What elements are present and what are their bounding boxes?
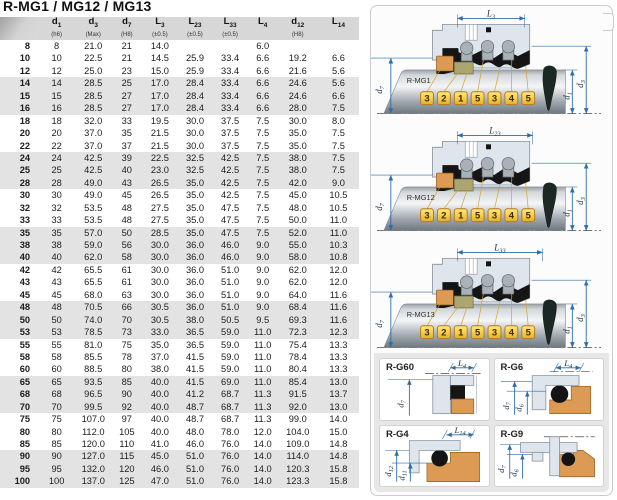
table-cell: 25.9 (177, 52, 212, 64)
table-cell: 40.0 (142, 388, 177, 400)
table-cell: 7.5 (248, 115, 278, 127)
table-cell: 14.0 (248, 438, 278, 450)
table-cell: 68.0 (75, 289, 111, 301)
table-cell: 46.0 (142, 463, 177, 475)
table-cell: 52.0 (278, 227, 318, 239)
table-cell: 48.0 (177, 426, 212, 438)
table-cell: 35.0 (177, 227, 212, 239)
table-cell: 40.0 (142, 376, 177, 388)
table-cell: 53.5 (75, 202, 111, 214)
springs (460, 274, 514, 295)
seal-model-label: R-MG13 (407, 310, 435, 319)
springs (460, 157, 514, 178)
dim-d7-label: d7 (495, 464, 507, 472)
table-cell: 137.0 (75, 475, 111, 487)
row-size-label: 24 (0, 152, 38, 164)
table-cell: 36.0 (177, 251, 212, 263)
row-size-label: 85 (0, 438, 38, 450)
table-cell: 33.4 (213, 90, 248, 102)
table-row: 101022.52114.525.933.46.619.26.6 (0, 52, 359, 64)
table-cell: 68 (38, 388, 75, 400)
table-cell: 36.0 (177, 264, 212, 276)
table-row: 222237.03721.530.037.57.535.07.5 (0, 140, 359, 152)
table-cell: 6.6 (318, 90, 359, 102)
table-cell: 11.0 (248, 363, 278, 375)
table-cell: 28.5 (75, 77, 111, 89)
row-size-label: 68 (0, 388, 38, 400)
table-cell: 48 (111, 202, 142, 214)
mini-panel-rg4: R-G4 L14 d12 d11 (379, 425, 490, 488)
table-cell: 20 (38, 127, 75, 139)
table-cell: 6.6 (248, 65, 278, 77)
datasheet-page: R-MG1 / MG12 / MG13 d1(h6)d3(Max)d7(H8)L… (0, 0, 617, 500)
table-cell: 85.4 (278, 376, 318, 388)
row-size-label: 75 (0, 413, 38, 425)
table-row: 282849.04326.535.042.57.542.09.0 (0, 177, 359, 189)
table-cell: 13.7 (318, 388, 359, 400)
table-cell: 48 (38, 301, 75, 313)
row-size-label: 50 (0, 314, 38, 326)
table-cell: 37.0 (75, 140, 111, 152)
table-cell: 69.0 (213, 376, 248, 388)
table-cell: 35.0 (278, 127, 318, 139)
table-cell: 47.5 (213, 227, 248, 239)
table-cell: 25.0 (75, 65, 111, 77)
table-cell: 35 (111, 127, 142, 139)
table-cell: 33 (38, 214, 75, 226)
table-cell: 26.5 (142, 177, 177, 189)
svg-text:3: 3 (424, 327, 429, 338)
table-cell: 76.0 (213, 450, 248, 462)
table-cell: 32.5 (177, 152, 212, 164)
table-cell: 11.6 (318, 301, 359, 313)
row-size-label: 12 (0, 65, 38, 77)
table-cell: 22 (38, 140, 75, 152)
table-cell: 9.0 (248, 289, 278, 301)
column-header: L14 (318, 17, 359, 40)
table-cell: 12 (38, 65, 75, 77)
table-cell: 15.0 (318, 426, 359, 438)
table-cell: 70 (38, 401, 75, 413)
table-cell: 7.5 (248, 227, 278, 239)
table-row: 353557.05028.535.047.57.552.011.0 (0, 227, 359, 239)
table-cell: 48 (111, 214, 142, 226)
table-cell: 55.0 (278, 239, 318, 251)
table-cell: 104.0 (278, 426, 318, 438)
table-cell: 40.0 (142, 401, 177, 413)
part-number-tags: 3 2 1 5 3 4 5 (421, 209, 535, 222)
table-cell: 42 (38, 264, 75, 276)
table-cell: 48.7 (177, 401, 212, 413)
table-cell: 13.0 (318, 401, 359, 413)
spec-table: d1(h6)d3(Max)d7(H8)L3(±0.5)L23(±0.5)L33(… (0, 17, 359, 488)
table-cell: 14.0 (248, 450, 278, 462)
table-cell: 13.3 (318, 351, 359, 363)
table-cell (318, 40, 359, 52)
table-cell: 99.0 (278, 413, 318, 425)
table-cell: 7.5 (248, 164, 278, 176)
table-cell: 51.0 (213, 264, 248, 276)
table-cell: 12.0 (318, 276, 359, 288)
table-cell: 51.0 (213, 289, 248, 301)
svg-text:3: 3 (492, 210, 497, 221)
table-cell: 28.0 (278, 102, 318, 114)
table-cell: 21.5 (142, 127, 177, 139)
table-cell: 49.0 (75, 177, 111, 189)
table-cell: 30.0 (142, 251, 177, 263)
column-header: d12(H8) (278, 17, 318, 40)
table-cell: 14.0 (248, 463, 278, 475)
table-cell: 33.4 (213, 65, 248, 77)
seal-model-label: R-MG12 (407, 193, 435, 202)
table-cell: 9.5 (248, 314, 278, 326)
table-cell: 10.5 (318, 189, 359, 201)
table-cell: 13.3 (318, 363, 359, 375)
table-cell: 72.3 (278, 326, 318, 338)
table-cell: 51.0 (177, 463, 212, 475)
table-cell: 43 (111, 177, 142, 189)
table-cell: 41.5 (177, 363, 212, 375)
table-row: 242442.53922.532.542.57.538.07.5 (0, 152, 359, 164)
table-cell: 35.0 (177, 214, 212, 226)
table-row: 8821.02114.06.0 (0, 40, 359, 52)
row-size-label: 35 (0, 227, 38, 239)
dim-d12-label: d12 (383, 465, 395, 477)
table-cell: 21.5 (142, 140, 177, 152)
table-cell: 35.0 (177, 177, 212, 189)
row-size-label: 42 (0, 264, 38, 276)
seat-drawing-rg6: L4 d7 d6 (495, 359, 604, 420)
table-cell: 51.0 (177, 475, 212, 487)
table-row: 424265.56130.036.051.09.062.012.0 (0, 264, 359, 276)
svg-text:4: 4 (509, 210, 515, 221)
table-cell: 21.6 (278, 65, 318, 77)
table-cell: 55 (38, 339, 75, 351)
table-cell: 42.0 (278, 177, 318, 189)
table-cell: 8 (38, 40, 75, 52)
table-cell: 74.0 (75, 314, 111, 326)
table-cell: 41.2 (177, 388, 212, 400)
table-cell: 17.0 (142, 77, 177, 89)
table-cell: 48.0 (278, 202, 318, 214)
table-cell: 7.5 (318, 164, 359, 176)
table-cell: 7.5 (318, 102, 359, 114)
page-title: R-MG1 / MG12 / MG13 (3, 0, 152, 14)
row-size-label: 25 (0, 164, 38, 176)
table-cell: 120.0 (75, 438, 111, 450)
table-cell: 45 (38, 289, 75, 301)
table-cell: 50.5 (213, 314, 248, 326)
table-cell: 40.0 (142, 413, 177, 425)
table-cell: 28.5 (75, 90, 111, 102)
row-size-label: 100 (0, 475, 38, 487)
row-size-label: 28 (0, 177, 38, 189)
table-cell: 60 (38, 363, 75, 375)
table-cell: 90 (111, 388, 142, 400)
table-cell: 11.0 (248, 326, 278, 338)
table-cell: 14.0 (142, 40, 177, 52)
table-cell: 70 (111, 314, 142, 326)
table-cell: 112.0 (75, 426, 111, 438)
dim-d3-label: d3 (575, 197, 587, 205)
svg-text:2: 2 (441, 93, 446, 104)
column-header: L33(±0.5) (213, 17, 248, 40)
svg-text:5: 5 (526, 210, 531, 221)
dim-d7-label: d7 (374, 319, 386, 327)
svg-text:2: 2 (441, 327, 446, 338)
table-cell: 78 (111, 351, 142, 363)
table-cell: 38 (38, 239, 75, 251)
table-cell: 61 (111, 264, 142, 276)
table-row: 202037.03521.530.037.57.535.07.5 (0, 127, 359, 139)
table-cell: 69.3 (278, 314, 318, 326)
table-cell: 17.0 (142, 90, 177, 102)
row-size-label: 32 (0, 202, 38, 214)
dim-d7-label: d7 (374, 85, 386, 93)
table-cell: 19.2 (278, 52, 318, 64)
table-cell: 68.7 (213, 413, 248, 425)
table-cell: 48.7 (177, 413, 212, 425)
table-cell: 59.0 (213, 339, 248, 351)
diagram-sheet: 3 2 1 5 3 4 5 L3 d7 d1 d3 R-MG1 (370, 5, 613, 496)
column-header: L23(±0.5) (177, 17, 212, 40)
table-cell: 50 (38, 314, 75, 326)
row-size-label: 58 (0, 351, 38, 363)
row-size-label: 45 (0, 289, 38, 301)
table-cell: 36.0 (177, 289, 212, 301)
table-row: 121225.02315.025.933.46.621.65.6 (0, 65, 359, 77)
table-cell: 25 (38, 164, 75, 176)
table-cell: 40.0 (142, 426, 177, 438)
table-row: 484870.56630.536.051.09.068.411.6 (0, 301, 359, 313)
table-cell: 39 (111, 152, 142, 164)
table-cell: 9.0 (248, 251, 278, 263)
table-row: 383859.05630.036.046.09.055.010.3 (0, 239, 359, 251)
table-cell: 24.6 (278, 90, 318, 102)
table-cell: 42.5 (213, 177, 248, 189)
table-row: 333353.54827.535.047.57.550.011.0 (0, 214, 359, 226)
table-row: 161628.52717.028.433.46.628.07.5 (0, 102, 359, 114)
table-cell: 6.6 (248, 102, 278, 114)
table-cell: 46.0 (177, 438, 212, 450)
column-header: L4 (248, 17, 278, 40)
table-cell: 88.5 (75, 363, 111, 375)
row-size-label: 55 (0, 339, 38, 351)
table-cell: 12.0 (318, 264, 359, 276)
table-cell: 27.5 (142, 202, 177, 214)
table-cell: 120 (111, 463, 142, 475)
table-cell: 123.3 (278, 475, 318, 487)
row-size-label: 80 (0, 426, 38, 438)
table-cell: 22.5 (75, 52, 111, 64)
table-cell: 37.0 (142, 351, 177, 363)
table-cell: 13.3 (318, 339, 359, 351)
table-cell: 47.5 (213, 202, 248, 214)
table-cell: 57.0 (75, 227, 111, 239)
table-cell: 11.0 (248, 351, 278, 363)
table-row: 9595132.012046.051.076.014.0120.315.8 (0, 463, 359, 475)
table-cell: 41.0 (142, 438, 177, 450)
table-cell: 23 (111, 65, 142, 77)
row-size-label: 38 (0, 239, 38, 251)
table-cell: 107.0 (75, 413, 111, 425)
table-cell: 93.5 (75, 376, 111, 388)
row-size-label: 15 (0, 90, 38, 102)
seal-diagram-r-mg12: 3 2 1 5 3 4 5 L23 d7 d1 d3 R-MG12 (371, 125, 612, 242)
table-cell: 25.9 (177, 65, 212, 77)
table-cell: 91.5 (278, 388, 318, 400)
table-cell: 28.4 (177, 90, 212, 102)
table-cell: 15 (38, 90, 75, 102)
table-cell: 37.5 (213, 140, 248, 152)
table-cell: 30.5 (142, 314, 177, 326)
table-cell: 28.4 (177, 77, 212, 89)
table-cell: 11.0 (248, 339, 278, 351)
table-cell: 47.5 (213, 214, 248, 226)
table-cell: 65.5 (75, 276, 111, 288)
table-cell: 25 (111, 77, 142, 89)
table-cell: 85.5 (75, 351, 111, 363)
row-size-label: 16 (0, 102, 38, 114)
table-cell: 42.5 (213, 164, 248, 176)
table-cell: 85 (111, 376, 142, 388)
table-cell: 33.4 (213, 102, 248, 114)
svg-text:3: 3 (424, 93, 429, 104)
table-cell: 21 (111, 52, 142, 64)
table-cell: 43 (38, 276, 75, 288)
table-cell: 13.0 (318, 376, 359, 388)
column-header: d3(Max) (75, 17, 111, 40)
drive-collar (436, 290, 453, 305)
table-cell: 40 (111, 164, 142, 176)
dim-d3-label: d3 (575, 80, 587, 88)
table-cell: 7.5 (318, 140, 359, 152)
table-cell: 80 (111, 363, 142, 375)
table-cell: 35.0 (177, 189, 212, 201)
table-cell: 76.0 (213, 438, 248, 450)
table-cell: 62.0 (278, 264, 318, 276)
table-cell: 27 (111, 90, 142, 102)
table-row: 585885.57837.041.559.011.078.413.3 (0, 351, 359, 363)
seal-diagram-r-mg13: 3 2 1 5 3 4 5 L33 d7 d1 d3 R-MG13 (371, 242, 612, 359)
table-row: 656593.58540.041.569.011.085.413.0 (0, 376, 359, 388)
table-cell: 100 (38, 475, 75, 487)
table-cell: 33.4 (213, 52, 248, 64)
table-row: 7575107.09740.048.768.711.399.014.0 (0, 413, 359, 425)
row-size-label: 90 (0, 450, 38, 462)
table-cell: 19.5 (142, 115, 177, 127)
table-cell: 37.5 (213, 127, 248, 139)
table-cell: 15.8 (318, 475, 359, 487)
row-size-label: 30 (0, 189, 38, 201)
table-cell: 37.5 (213, 115, 248, 127)
table-cell: 36.0 (177, 239, 212, 251)
table-cell: 66 (111, 301, 142, 313)
table-row: 151528.52717.028.433.46.624.66.6 (0, 90, 359, 102)
table-cell: 33.0 (142, 326, 177, 338)
table-cell: 115 (111, 450, 142, 462)
table-cell: 11.3 (248, 401, 278, 413)
table-cell: 7.5 (248, 214, 278, 226)
table-cell: 7.5 (248, 177, 278, 189)
row-size-label: 60 (0, 363, 38, 375)
table-cell: 51.0 (177, 450, 212, 462)
dim-d6-label: d6 (508, 468, 520, 476)
table-cell: 8.0 (318, 115, 359, 127)
table-cell: 51.0 (213, 276, 248, 288)
retainer-part (454, 62, 473, 74)
table-cell: 7.5 (248, 127, 278, 139)
seat-panel-grid: R-G60 L4 d7 (374, 353, 609, 492)
svg-text:2: 2 (441, 210, 446, 221)
mini-panel-rg6: R-G6 L4 d7 (494, 358, 605, 421)
table-cell: 59.0 (213, 351, 248, 363)
table-row: 707099.59240.048.768.711.392.013.0 (0, 401, 359, 413)
column-header: d7(H8) (111, 17, 142, 40)
seat-drawing-rg9: d7 d6 (495, 426, 604, 487)
svg-text:1: 1 (458, 210, 463, 221)
svg-text:1: 1 (458, 327, 463, 338)
table-cell: 62.0 (278, 276, 318, 288)
table-cell: 28 (38, 177, 75, 189)
table-cell: 46.0 (213, 239, 248, 251)
table-cell: 38.0 (142, 363, 177, 375)
row-size-label: 40 (0, 251, 38, 263)
table-cell: 11.3 (248, 388, 278, 400)
table-cell: 65.5 (75, 264, 111, 276)
table-cell: 96.5 (75, 388, 111, 400)
table-cell: 36.0 (177, 276, 212, 288)
table-cell: 62.0 (75, 251, 111, 263)
table-cell: 41.5 (177, 351, 212, 363)
table-cell: 28.5 (75, 102, 111, 114)
table-cell: 105 (111, 426, 142, 438)
table-cell: 38.0 (278, 152, 318, 164)
table-cell: 99.5 (75, 401, 111, 413)
table-cell: 78.0 (213, 426, 248, 438)
table-cell: 5.6 (318, 65, 359, 77)
table-cell: 58 (111, 251, 142, 263)
table-cell: 85 (38, 438, 75, 450)
table-cell: 10.3 (318, 239, 359, 251)
table-cell: 12.3 (318, 326, 359, 338)
dim-d7-label: d7 (396, 399, 408, 407)
retainer-part (454, 296, 473, 308)
table-cell: 30.0 (278, 115, 318, 127)
table-row: 535378.57333.036.559.011.072.312.3 (0, 326, 359, 338)
table-cell: 12.0 (248, 426, 278, 438)
table-cell: 36.5 (177, 339, 212, 351)
table-cell: 50 (111, 227, 142, 239)
seat-drawing-rg4: L14 d12 d11 (380, 426, 489, 487)
table-cell: 80 (38, 426, 75, 438)
table-cell: 42.5 (75, 164, 111, 176)
row-size-label: 10 (0, 52, 38, 64)
table-header-row: d1(h6)d3(Max)d7(H8)L3(±0.5)L23(±0.5)L33(… (0, 17, 359, 40)
table-cell: 27.5 (142, 214, 177, 226)
table-cell: 16 (38, 102, 75, 114)
table-cell: 33.4 (213, 77, 248, 89)
table-cell: 7.5 (248, 140, 278, 152)
table-cell: 63 (111, 289, 142, 301)
table-cell: 41.5 (177, 376, 212, 388)
table-cell: 38.0 (278, 164, 318, 176)
table-cell: 11.0 (318, 214, 359, 226)
table-cell: 9.0 (248, 276, 278, 288)
table-cell: 30.0 (142, 239, 177, 251)
table-cell: 110 (111, 438, 142, 450)
table-cell: 42.5 (213, 189, 248, 201)
